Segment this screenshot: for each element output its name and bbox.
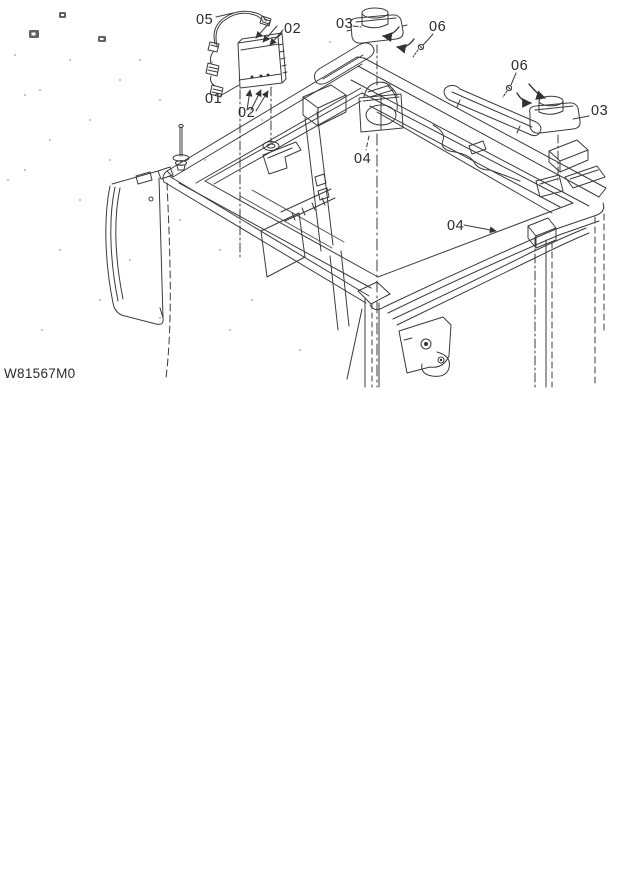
door-hinge-bracket [399, 317, 451, 376]
left-door-panel [106, 167, 173, 378]
callout-01-controller: 01 [205, 92, 222, 107]
parts-diagram-page: 05 02 03 06 01 02 06 03 04 04 W81567M0 [0, 0, 620, 873]
screw-06-right [503, 73, 516, 97]
drawing-code: W81567M0 [4, 366, 75, 381]
callout-02-screws-bottom: 02 [238, 106, 255, 121]
callout-06-screw-right: 06 [511, 59, 528, 74]
callout-03-cap-left: 03 [336, 17, 353, 32]
callout-02-screws-top: 02 [284, 22, 301, 37]
screw-06-left [413, 34, 433, 57]
exploded-view-drawing [0, 0, 620, 873]
scan-noise [7, 12, 331, 351]
cap-03-left [347, 8, 414, 86]
callout-03-cap-right: 03 [591, 104, 608, 119]
callout-05-harness: 05 [196, 13, 213, 28]
housing-04-left [359, 82, 403, 387]
callout-04-housing-left: 04 [354, 152, 371, 167]
callout-04-hole-right: 04 [447, 219, 464, 234]
hole-04-right [464, 175, 563, 231]
callout-06-screw-left: 06 [429, 20, 446, 35]
